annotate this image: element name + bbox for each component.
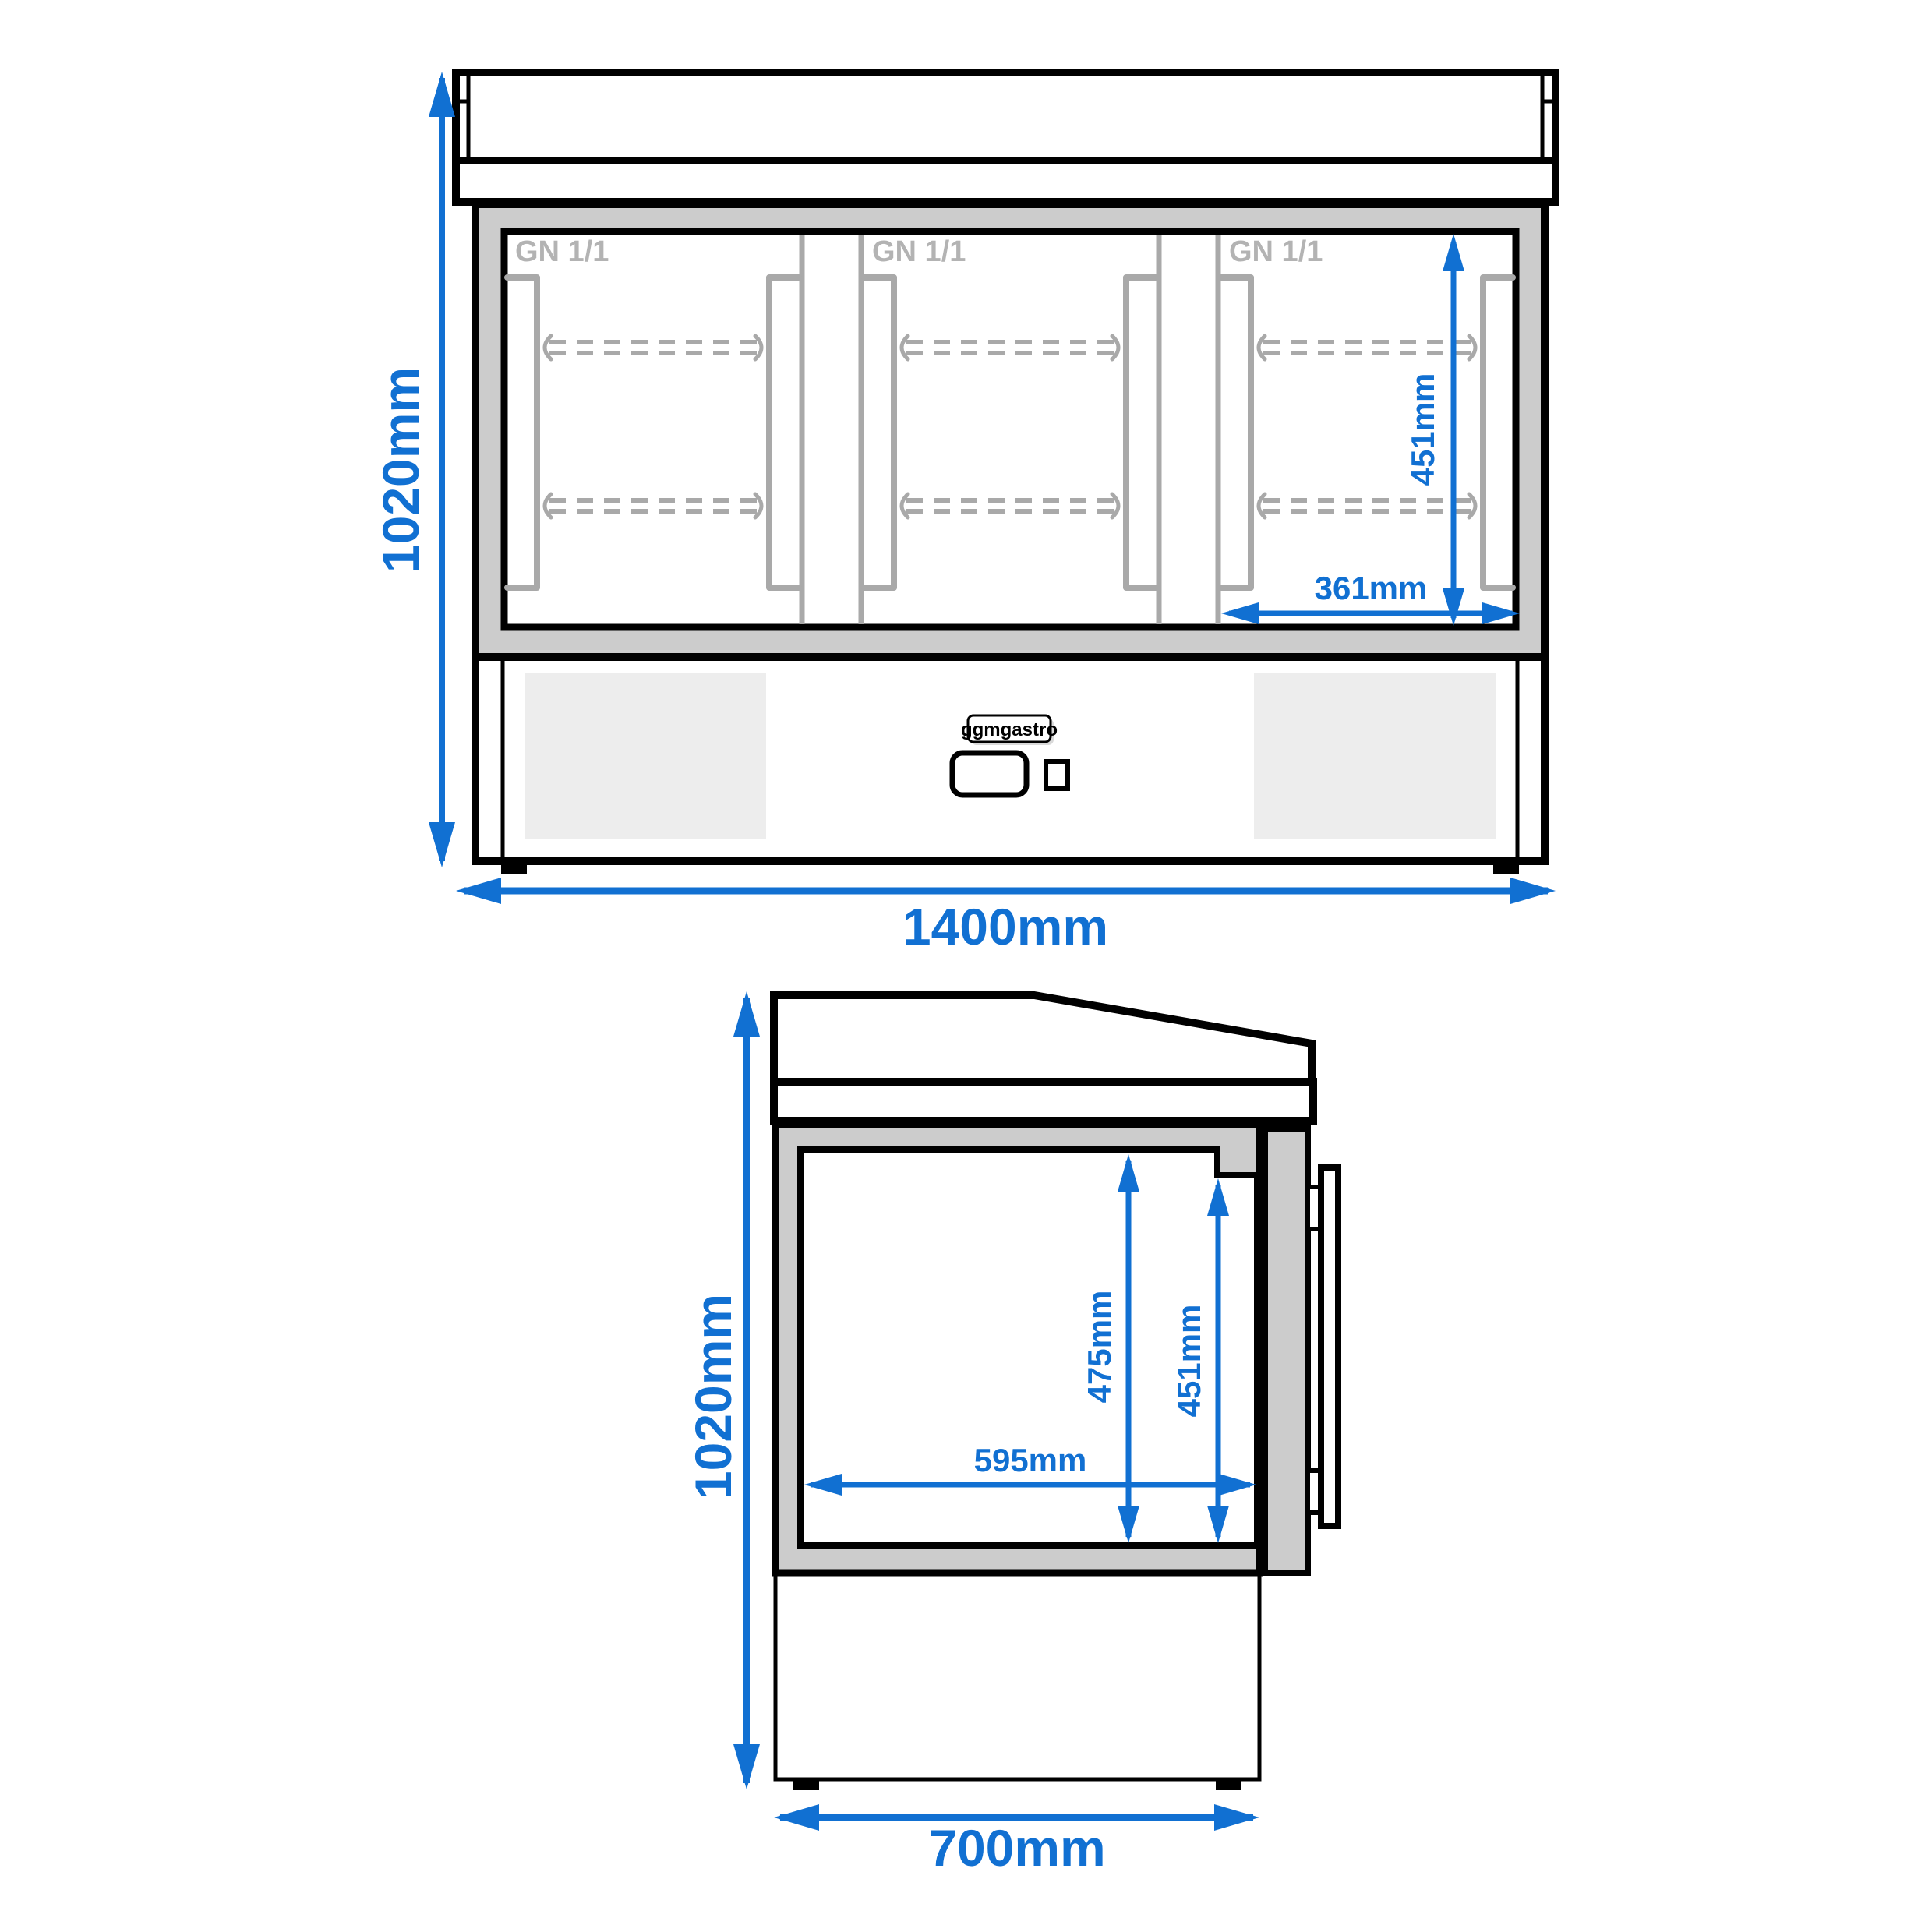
- vent-panel-right: [1254, 673, 1496, 839]
- side-lid: [774, 995, 1312, 1082]
- dim-label: 361mm: [1315, 570, 1428, 606]
- vent-panel-left: [525, 673, 766, 839]
- front-lower-panel: ggmgastro: [475, 657, 1545, 861]
- dim-front-overall-height: 1020mm: [372, 72, 455, 867]
- dim-label: 1020mm: [372, 367, 429, 573]
- side-worktop-band: [774, 1082, 1313, 1121]
- dim-label: 595mm: [974, 1442, 1087, 1478]
- logo-text: ggmgastro: [961, 719, 1058, 740]
- foot: [501, 860, 527, 874]
- side-lower-compartment: [775, 1574, 1259, 1779]
- technical-drawing: GN 1/1 GN 1/1: [0, 0, 1932, 1932]
- front-view: GN 1/1 GN 1/1: [372, 72, 1556, 955]
- control-button: [1046, 761, 1068, 789]
- door-handle: [1321, 1167, 1338, 1526]
- dim-front-overall-width: 1400mm: [456, 878, 1556, 955]
- foot: [1216, 1779, 1241, 1790]
- foot: [1493, 860, 1519, 874]
- dim-side-overall-height: 1020mm: [684, 991, 760, 1789]
- dim-label: 475mm: [1081, 1291, 1118, 1404]
- dim-label: 451mm: [1171, 1305, 1207, 1418]
- gn-label: GN 1/1: [1229, 235, 1323, 268]
- gn-label: GN 1/1: [872, 235, 966, 268]
- dim-label: 451mm: [1404, 373, 1441, 486]
- control-display: [952, 753, 1026, 795]
- gn-label: GN 1/1: [515, 235, 609, 268]
- side-door-slab: [1265, 1128, 1308, 1573]
- dim-label: 1020mm: [684, 1294, 742, 1499]
- dim-label: 700mm: [928, 1819, 1106, 1877]
- drawing-stage: GN 1/1 GN 1/1: [0, 0, 1932, 1932]
- dim-side-overall-depth: 700mm: [774, 1804, 1259, 1877]
- front-lid-body: [456, 72, 1556, 161]
- dim-label: 1400mm: [902, 898, 1108, 955]
- front-worktop-band: [456, 161, 1556, 202]
- front-glass-opening: [504, 231, 1516, 627]
- front-lid: [456, 72, 1556, 161]
- brand-logo: ggmgastro: [961, 715, 1058, 745]
- foot: [793, 1779, 819, 1790]
- side-view: 1020mm 475mm 451mm 595mm 700: [684, 991, 1338, 1877]
- side-door: [1265, 1128, 1338, 1573]
